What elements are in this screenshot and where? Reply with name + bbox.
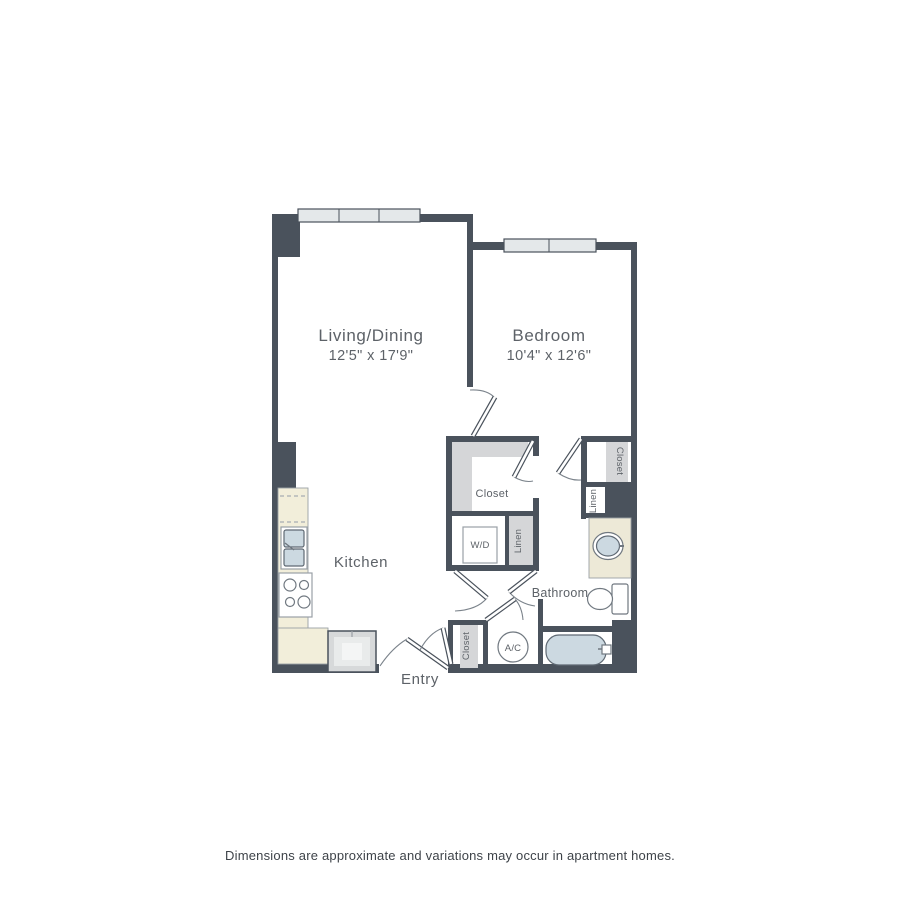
bedroom-closet-label: Closet xyxy=(614,447,625,475)
disclaimer-text: Dimensions are approximate and variation… xyxy=(0,848,900,863)
bedroom-dimensions: 10'4" x 12'6" xyxy=(507,348,592,364)
entry-door xyxy=(380,639,448,668)
living-room-dimensions: 12'5" x 17'9" xyxy=(329,348,414,364)
linen-center-label: Linen xyxy=(513,529,524,553)
bedroom-label: Bedroom xyxy=(512,326,585,345)
entry-label: Entry xyxy=(401,671,439,688)
living-room-label: Living/Dining xyxy=(318,326,423,345)
refrigerator xyxy=(328,631,376,672)
living-window xyxy=(298,209,420,222)
ac-label: A/C xyxy=(505,643,521,654)
kitchen-label: Kitchen xyxy=(334,554,388,571)
wd-label: W/D xyxy=(470,540,489,551)
bathroom-sink xyxy=(593,533,624,560)
linen-bath-label: Linen xyxy=(588,489,599,513)
bedroom-window xyxy=(504,239,596,252)
bedroom-door xyxy=(470,390,495,436)
bathroom-label: Bathroom xyxy=(532,586,589,600)
wd-door xyxy=(455,571,487,611)
floor-plan-canvas: Living/Dining 12'5" x 17'9" Bedroom 10'4… xyxy=(0,0,900,900)
bedroom-closet-door xyxy=(558,439,581,480)
floor-plan: Living/Dining 12'5" x 17'9" Bedroom 10'4… xyxy=(0,0,900,900)
walkin-closet-label: Closet xyxy=(476,488,509,500)
kitchen-sink xyxy=(281,527,307,569)
stove xyxy=(279,573,312,617)
bathtub xyxy=(546,635,611,665)
entry-closet-label: Closet xyxy=(461,632,472,660)
ac-door xyxy=(486,599,523,620)
toilet xyxy=(588,584,629,614)
